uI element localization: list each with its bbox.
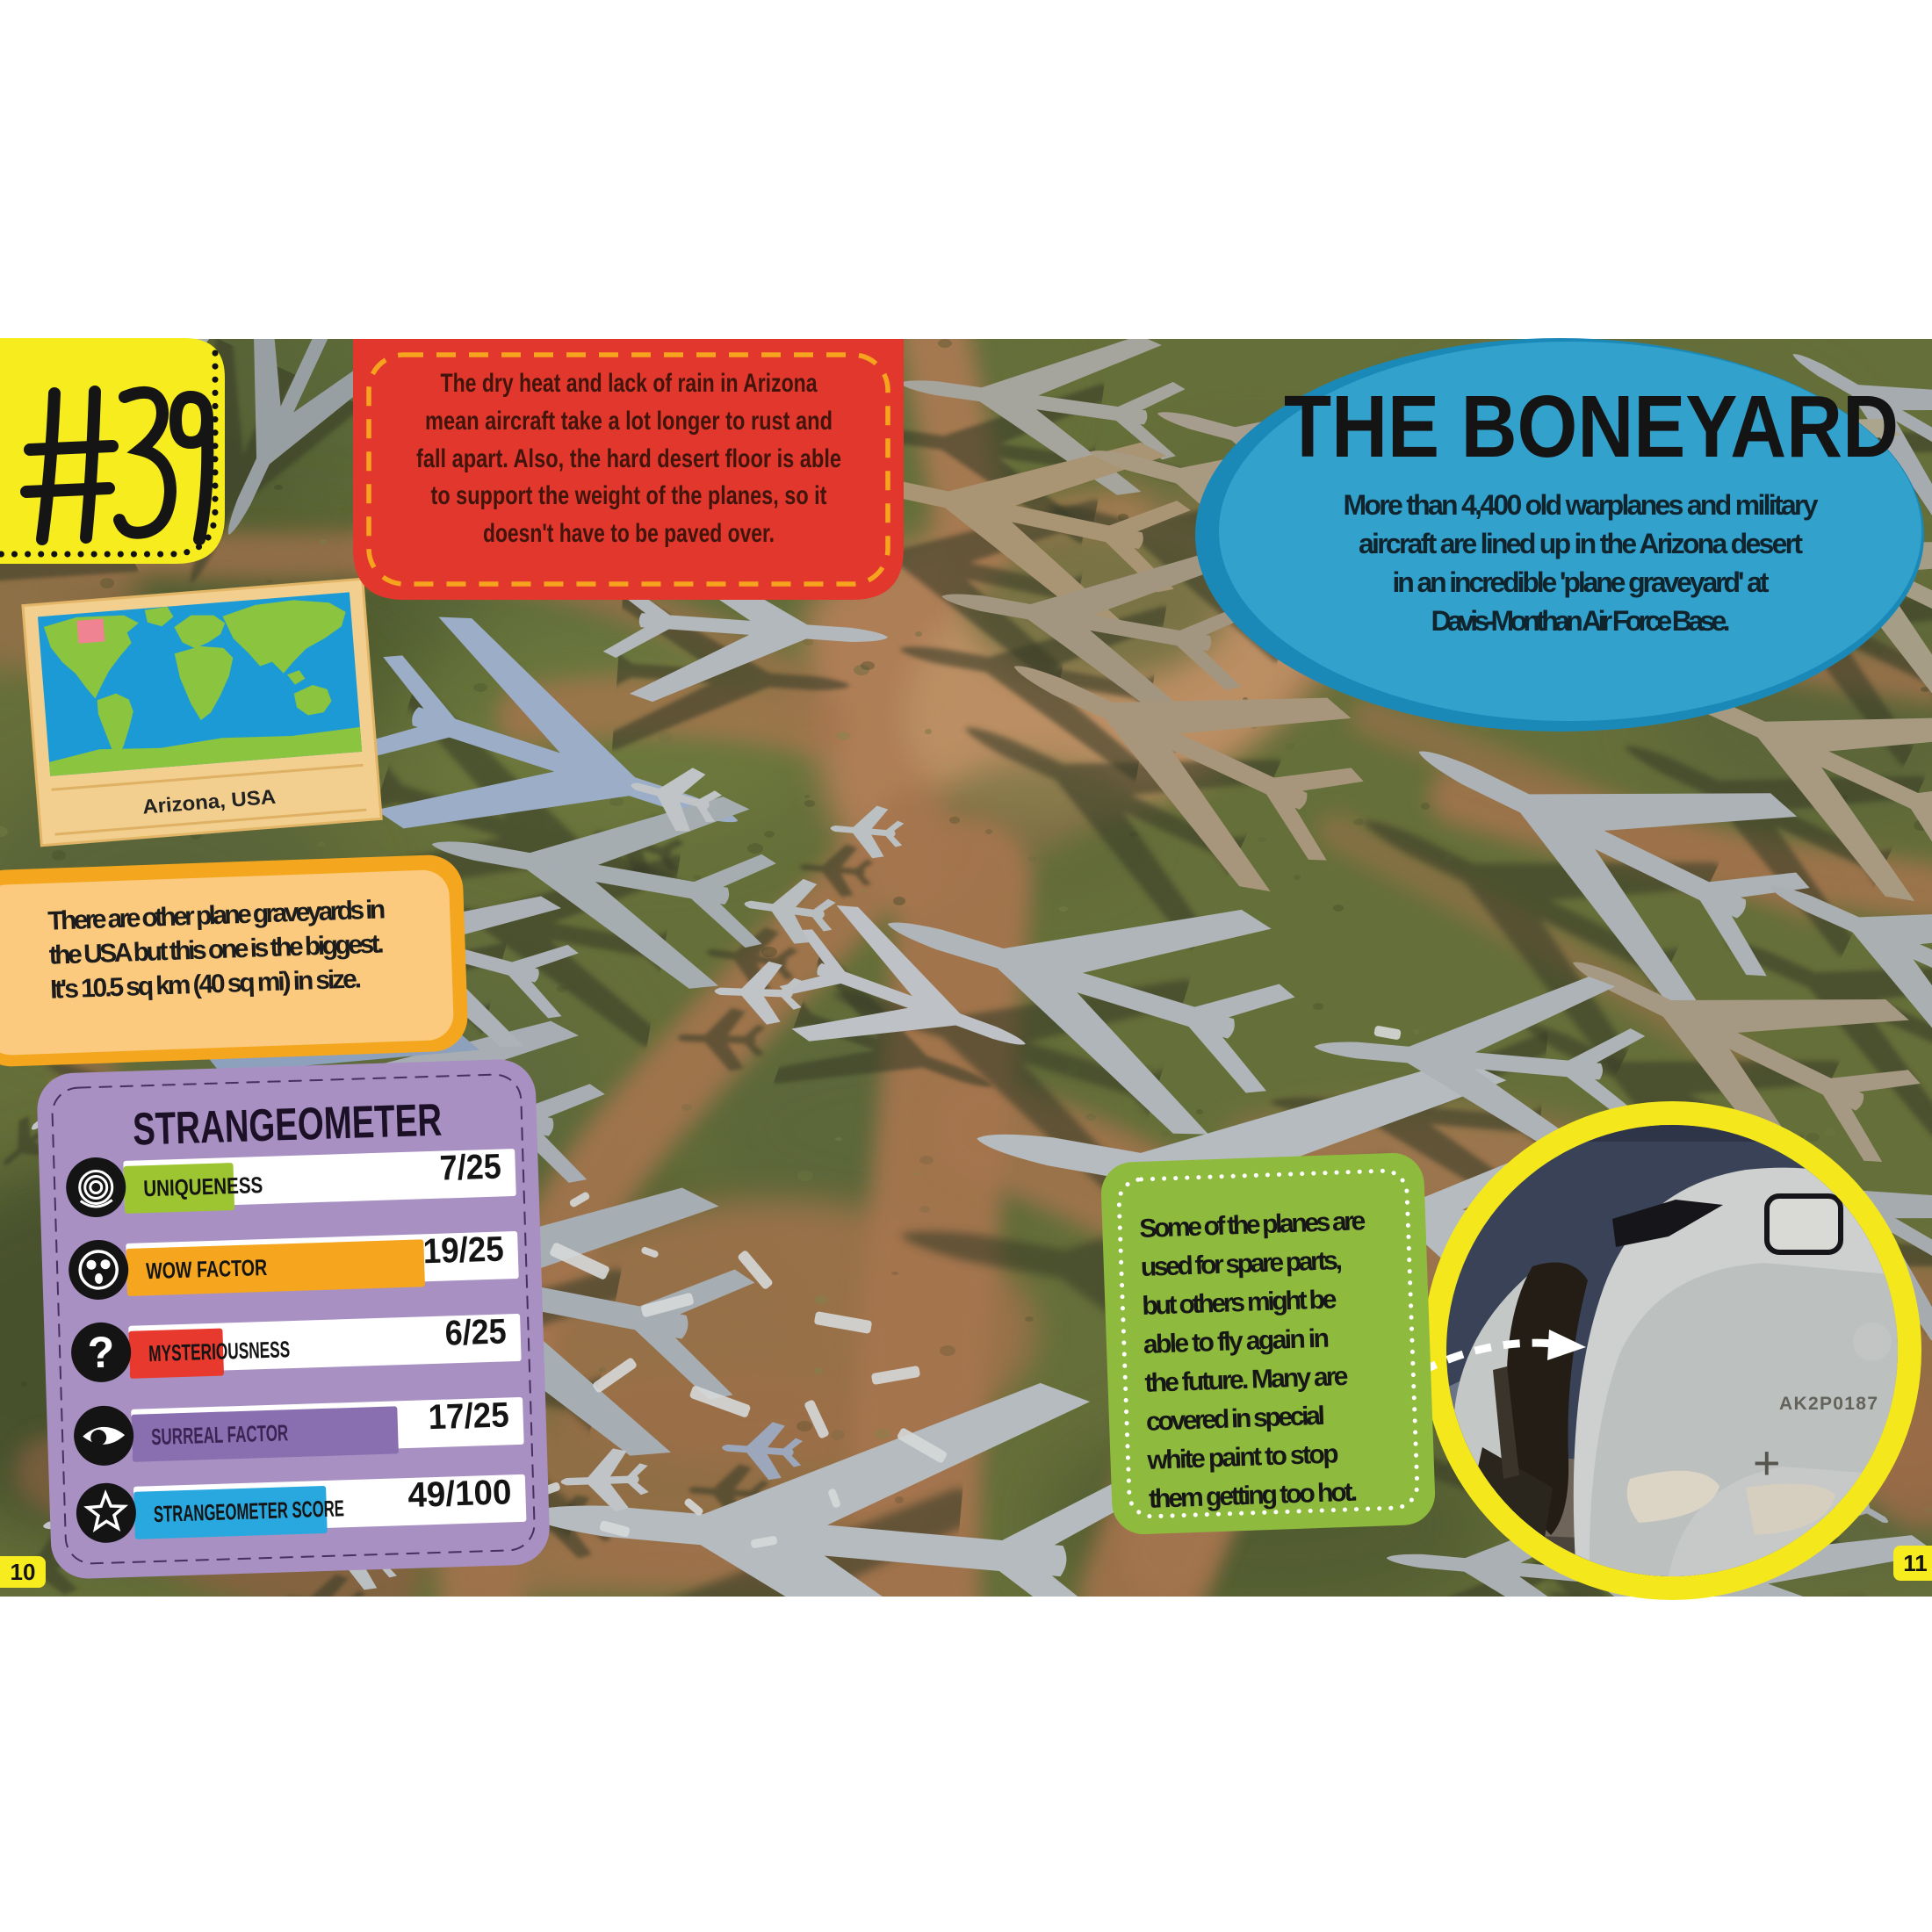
svg-text:7/25: 7/25 [439,1147,501,1187]
svg-text:Davis-Monthan Air Force Base.: Davis-Monthan Air Force Base. [1431,605,1731,637]
svg-text:MYSTERIOUSNESS: MYSTERIOUSNESS [148,1336,291,1366]
svg-text:STRANGEOMETER: STRANGEOMETER [132,1095,443,1156]
svg-text:The dry heat and lack of rain: The dry heat and lack of rain in Arizona [441,369,818,398]
svg-text:More than 4,400 old warplanes: More than 4,400 old warplanes and milita… [1344,489,1819,521]
svg-text:10: 10 [11,1559,36,1585]
svg-text:WOW FACTOR: WOW FACTOR [146,1254,268,1284]
svg-text:UNIQUENESS: UNIQUENESS [143,1171,263,1201]
svg-text:SURREAL FACTOR: SURREAL FACTOR [151,1419,289,1450]
svg-text:19/25: 19/25 [422,1229,504,1271]
svg-text:to support the weight of the p: to support the weight of the planes, so … [431,481,827,510]
svg-text:11: 11 [1903,1550,1928,1576]
svg-text:aircraft are lined up in the A: aircraft are lined up in the Arizona des… [1359,528,1803,559]
svg-text:in an incredible 'plane gravey: in an incredible 'plane graveyard' at [1393,566,1770,598]
svg-text:doesn't have to be paved over.: doesn't have to be paved over. [483,519,775,548]
svg-text:+: + [1753,1437,1781,1489]
svg-text:6/25: 6/25 [444,1312,507,1352]
svg-text:THE BONEYARD: THE BONEYARD [1284,378,1899,476]
svg-text:mean aircraft take a lot longe: mean aircraft take a lot longer to rust … [425,407,833,436]
svg-text:17/25: 17/25 [428,1395,509,1437]
svg-text:49/100: 49/100 [407,1473,512,1515]
svg-text:AK2P0187: AK2P0187 [1779,1394,1878,1414]
svg-text:fall apart. Also, the hard des: fall apart. Also, the hard desert floor … [416,444,841,473]
svg-text:?: ? [87,1327,115,1377]
